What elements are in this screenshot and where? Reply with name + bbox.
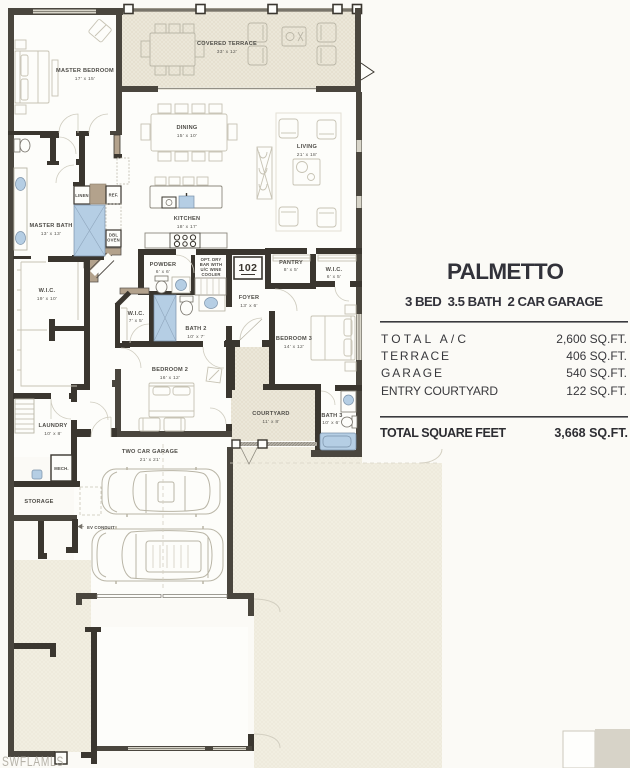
- svg-text:10' x 8': 10' x 8': [44, 431, 62, 437]
- svg-text:2,600 SQ.FT.: 2,600 SQ.FT.: [556, 332, 627, 346]
- svg-text:TOTAL SQUARE FEET: TOTAL SQUARE FEET: [380, 426, 506, 440]
- svg-text:13' x 13': 13' x 13': [41, 231, 62, 237]
- svg-text:17' x 15': 17' x 15': [75, 76, 96, 82]
- svg-text:W.I.C.: W.I.C.: [326, 267, 343, 273]
- svg-text:16' x 12': 16' x 12': [160, 375, 181, 381]
- svg-text:33' x 12': 33' x 12': [217, 49, 238, 55]
- svg-text:14' x 12': 14' x 12': [284, 344, 305, 350]
- svg-text:122 SQ.FT.: 122 SQ.FT.: [566, 384, 627, 398]
- svg-text:540 SQ.FT.: 540 SQ.FT.: [566, 366, 627, 380]
- svg-text:15' x 10': 15' x 10': [177, 133, 198, 139]
- svg-text:6' x 6': 6' x 6': [156, 269, 171, 275]
- svg-text:BEDROOM 2: BEDROOM 2: [152, 367, 188, 373]
- svg-text:MASTER BEDROOM: MASTER BEDROOM: [56, 68, 114, 74]
- svg-text:7' x 5': 7' x 5': [129, 318, 144, 324]
- svg-text:3 BED 3.5 BATH 2 CAR GARAGE: 3 BED 3.5 BATH 2 CAR GARAGE: [405, 294, 603, 309]
- svg-text:LIVING: LIVING: [297, 144, 317, 150]
- svg-text:SWFLAMLS: SWFLAMLS: [2, 753, 64, 768]
- svg-text:21' x 21': 21' x 21': [140, 457, 161, 463]
- svg-text:TERRACE: TERRACE: [381, 349, 449, 363]
- svg-text:FOYER: FOYER: [239, 295, 260, 301]
- svg-text:BATH 3: BATH 3: [321, 413, 342, 419]
- svg-text:11' x 8': 11' x 8': [262, 419, 279, 425]
- svg-text:COVERED TERRACE: COVERED TERRACE: [197, 41, 257, 47]
- svg-text:406 SQ.FT.: 406 SQ.FT.: [566, 349, 627, 363]
- svg-text:8' x 5': 8' x 5': [284, 267, 299, 273]
- svg-text:10' x 7': 10' x 7': [187, 334, 205, 340]
- svg-text:BEDROOM 3: BEDROOM 3: [276, 336, 312, 342]
- svg-text:KITCHEN: KITCHEN: [174, 216, 201, 222]
- svg-text:COURTYARD: COURTYARD: [252, 411, 289, 417]
- svg-text:PANTRY: PANTRY: [279, 260, 303, 266]
- svg-text:21' x 18': 21' x 18': [297, 152, 318, 158]
- svg-text:W.I.C.: W.I.C.: [128, 311, 145, 317]
- svg-text:13' x 6': 13' x 6': [240, 303, 258, 309]
- svg-text:COOLER: COOLER: [201, 272, 220, 277]
- svg-text:BATH 2: BATH 2: [185, 326, 206, 332]
- svg-text:102: 102: [238, 262, 257, 274]
- svg-text:LAUNDRY: LAUNDRY: [39, 423, 68, 429]
- svg-text:6' x 5': 6' x 5': [327, 274, 342, 280]
- svg-text:STORAGE: STORAGE: [24, 499, 53, 505]
- svg-text:LINEN: LINEN: [75, 193, 89, 198]
- svg-text:OVEN: OVEN: [107, 238, 120, 243]
- svg-text:MASTER BATH: MASTER BATH: [29, 223, 72, 229]
- svg-text:19' x 10': 19' x 10': [37, 296, 58, 302]
- svg-text:POWDER: POWDER: [150, 262, 177, 268]
- svg-text:DINING: DINING: [176, 125, 197, 131]
- svg-text:TOTAL A/C: TOTAL A/C: [381, 332, 466, 346]
- svg-text:W.I.C.: W.I.C.: [39, 288, 56, 294]
- svg-text:PALMETTO: PALMETTO: [447, 259, 564, 284]
- svg-text:10' x 6': 10' x 6': [322, 420, 340, 426]
- svg-text:MECH.: MECH.: [54, 466, 69, 471]
- svg-text:REF.: REF.: [109, 193, 119, 198]
- svg-text:ENTRY COURTYARD: ENTRY COURTYARD: [381, 384, 498, 398]
- svg-text:TWO CAR GARAGE: TWO CAR GARAGE: [122, 449, 178, 455]
- svg-text:EV CONDUIT: EV CONDUIT: [87, 525, 115, 530]
- svg-text:3,668 SQ.FT.: 3,668 SQ.FT.: [554, 426, 628, 440]
- svg-text:18' x 17': 18' x 17': [177, 224, 198, 230]
